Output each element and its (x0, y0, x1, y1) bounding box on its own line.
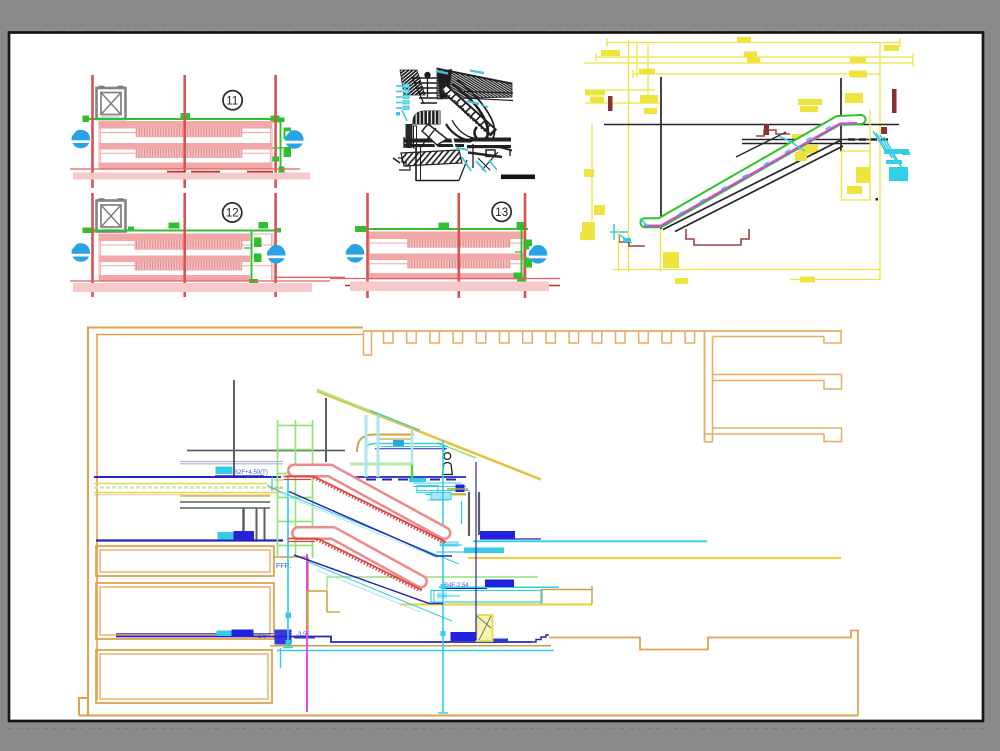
svg-text:11: 11 (226, 95, 238, 107)
svg-text:-3.57: -3.57 (296, 632, 310, 638)
svg-text:13: 13 (495, 207, 508, 219)
svg-text:FFR.: FFR. (276, 563, 292, 570)
svg-text:12: 12 (226, 208, 239, 220)
svg-text:B2F+4.50(T): B2F+4.50(T) (234, 470, 268, 476)
svg-text:-1.5: -1.5 (256, 634, 267, 640)
